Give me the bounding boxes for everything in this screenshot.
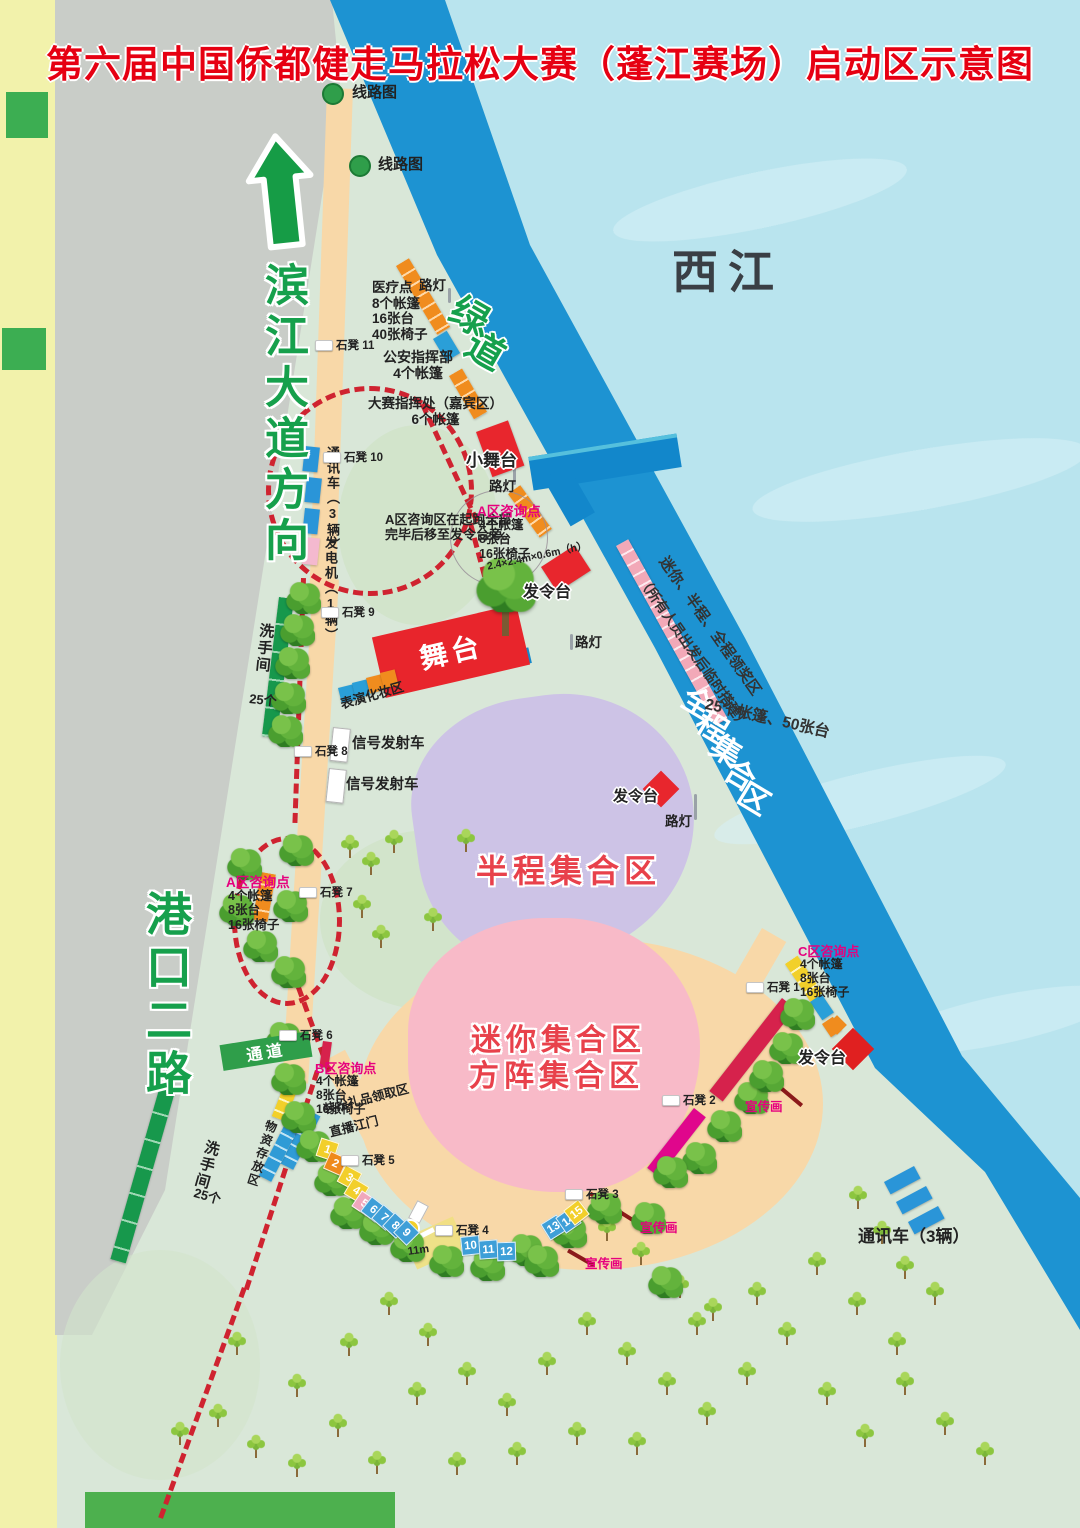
sapling (228, 1331, 246, 1355)
sapling (340, 1332, 358, 1356)
tree (652, 1156, 688, 1188)
sapling (698, 1401, 716, 1425)
route-number: 12 (497, 1242, 517, 1262)
sapling (849, 1185, 867, 1209)
route-map-dot-icon (349, 155, 371, 177)
sapling (936, 1411, 954, 1435)
signal-1: 信号发射车 (352, 736, 425, 753)
route-number: 11 (478, 1239, 498, 1259)
sapling (538, 1351, 556, 1375)
bench-icon (294, 746, 312, 757)
a-point-2-info: 4个帐篷8张台16张椅子 (228, 889, 279, 932)
bench-icon (341, 1155, 359, 1166)
generator: 发电机（1辆） (322, 536, 337, 643)
street-lamp-icon (570, 634, 573, 650)
sapling (808, 1251, 826, 1275)
bench-label: 石凳 1 (746, 979, 800, 995)
sapling (247, 1434, 265, 1458)
street-lamp-icon (694, 794, 697, 820)
sapling (448, 1451, 466, 1475)
sapling (748, 1281, 766, 1305)
sapling (288, 1453, 306, 1477)
sapling (424, 907, 442, 931)
event-map: 第六届中国侨都健走马拉松大赛（蓬江赛场）启动区示意图 西江 滨江大道方向 港口二… (0, 0, 1080, 1528)
bench-label: 石凳 2 (662, 1092, 716, 1108)
sapling (628, 1431, 646, 1455)
roadside-green-patch (6, 92, 48, 138)
direction-arrow-icon (240, 129, 322, 254)
sapling (856, 1423, 874, 1447)
tree (278, 834, 314, 866)
bench-label: 石凳 9 (321, 604, 375, 620)
stage-label: 舞台 (415, 624, 486, 677)
sapling (632, 1241, 650, 1265)
bench-icon (662, 1095, 680, 1106)
sapling (738, 1361, 756, 1385)
tree (270, 1063, 306, 1095)
sapling (380, 1291, 398, 1315)
banner-3: 宣传画 (585, 1257, 623, 1271)
sapling (362, 851, 380, 875)
small-stage: 小舞台 (466, 451, 517, 471)
sapling (704, 1297, 722, 1321)
sapling (458, 1361, 476, 1385)
sapling (578, 1311, 596, 1335)
sapling (778, 1321, 796, 1345)
zone-label-half: 半程集合区 (476, 846, 661, 892)
sapling (457, 828, 475, 852)
sapling (508, 1441, 526, 1465)
sapling (353, 894, 371, 918)
tree (748, 1060, 784, 1092)
bench-label: 石凳 11 (315, 337, 374, 353)
bench-icon (279, 1030, 297, 1041)
sapling (926, 1281, 944, 1305)
sapling (419, 1322, 437, 1346)
police: 公安指挥部4个帐篷 (383, 349, 453, 381)
bench-label: 石凳 8 (294, 743, 348, 759)
sapling (688, 1311, 706, 1335)
sapling (976, 1441, 994, 1465)
lamp-2: 路灯 (489, 479, 516, 495)
command: 大赛指挥处（嘉宾区）6个帐篷 (368, 396, 503, 427)
sapling (888, 1331, 906, 1355)
lawn-area (60, 1250, 260, 1480)
start-platform-1: 发令台 (523, 584, 571, 602)
tree (706, 1110, 742, 1142)
bench-icon (315, 340, 333, 351)
sapling (498, 1392, 516, 1416)
tree (779, 998, 815, 1030)
bench-label: 石凳 4 (435, 1222, 489, 1238)
tree (279, 614, 315, 646)
tree (523, 1245, 559, 1277)
tree (270, 956, 306, 988)
sapling (896, 1255, 914, 1279)
bench-label: 石凳 6 (279, 1027, 333, 1043)
bench-icon (321, 607, 339, 618)
road-name-binjiang: 滨江大道方向 (250, 262, 314, 568)
tree (274, 647, 310, 679)
sapling (372, 924, 390, 948)
sapling (368, 1450, 386, 1474)
tree (647, 1266, 683, 1298)
tree (280, 1101, 316, 1133)
sapling (329, 1413, 347, 1437)
bench-icon (299, 887, 317, 898)
sapling (568, 1421, 586, 1445)
banner-2: 宣传画 (640, 1221, 678, 1235)
medical: 医疗点8个帐篷16张台40张椅子 (372, 280, 428, 342)
c-point-info: 4个帐篷8张台16张椅子 (800, 958, 849, 999)
signal-truck-block (325, 768, 346, 804)
bench-icon (435, 1225, 453, 1236)
bench-icon (565, 1189, 583, 1200)
start-platform-2: 发令台 (613, 788, 658, 805)
river-name: 西江 (672, 236, 784, 302)
sapling (618, 1341, 636, 1365)
bench-label: 石凳 3 (565, 1186, 619, 1202)
road-name-gangkou: 港口二路 (133, 890, 199, 1102)
bench-label: 石凳 5 (341, 1152, 395, 1168)
bench-label: 石凳 10 (323, 449, 383, 465)
sapling (341, 834, 359, 858)
sapling (288, 1373, 306, 1397)
street-lamp-icon (448, 288, 451, 303)
lamp-3: 路灯 (575, 635, 602, 651)
start-platform-3: 发令台 (798, 1050, 846, 1068)
page-title: 第六届中国侨都健走马拉松大赛（蓬江赛场）启动区示意图 (0, 34, 1080, 88)
comms-bottom: 通讯车（3辆） (858, 1227, 969, 1247)
sapling (408, 1381, 426, 1405)
sapling (209, 1403, 227, 1427)
toilets-top-count: 25个 (248, 692, 277, 710)
sapling (818, 1381, 836, 1405)
roadside-green-patch (2, 328, 46, 370)
sapling (658, 1371, 676, 1395)
banner-1: 宣传画 (745, 1100, 783, 1114)
sapling (896, 1371, 914, 1395)
signal-2: 信号发射车 (346, 777, 419, 794)
bench-icon (323, 452, 341, 463)
tree (285, 582, 321, 614)
lamp-4: 路灯 (665, 814, 692, 830)
bench-icon (746, 982, 764, 993)
zone-label-formation: 方阵集合区 (469, 1051, 644, 1095)
route-map-2: 线路图 (378, 156, 423, 173)
sapling (848, 1291, 866, 1315)
bottom-green-strip (85, 1492, 395, 1528)
tree (428, 1245, 464, 1277)
bench-label: 石凳 7 (299, 884, 353, 900)
sapling (385, 829, 403, 853)
